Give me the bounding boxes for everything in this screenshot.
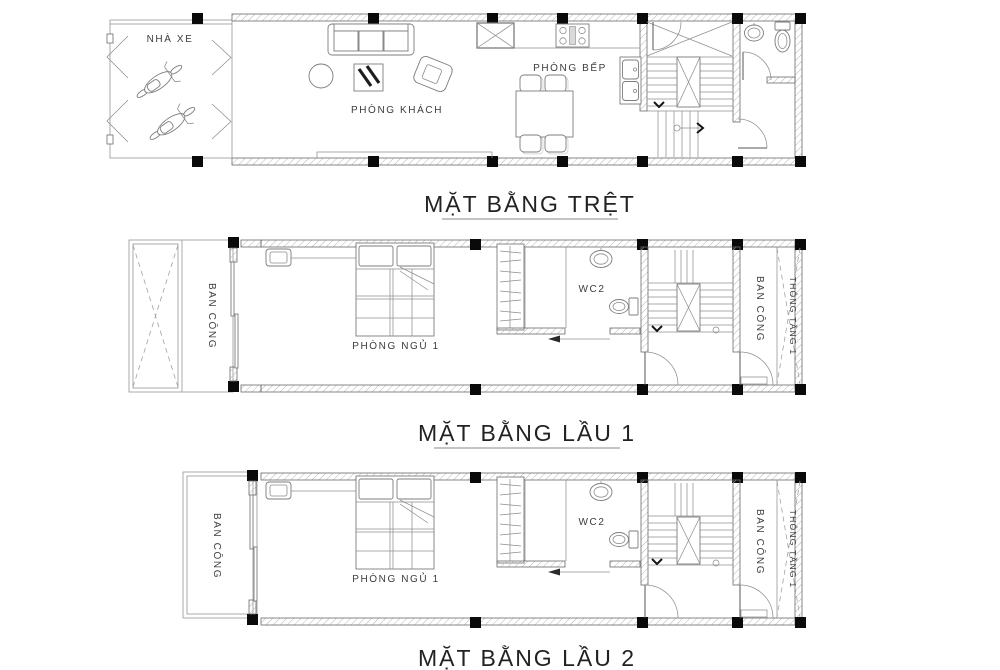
- dining-table-icon: [516, 75, 573, 154]
- floor-1-plan: BAN CÔNG PHÒNG NGỦ 1 WC2 BAN CÔNG THÔNG …: [129, 237, 806, 395]
- living-label: PHÒNG KHÁCH: [351, 103, 443, 116]
- wall-right: [795, 21, 802, 158]
- wc-label: WC2: [578, 284, 605, 295]
- side-table-icon: [309, 64, 333, 88]
- sink-icon: [745, 23, 764, 41]
- wall-bottom: [241, 385, 261, 392]
- door-swing: [738, 119, 767, 148]
- sliding-door: [247, 470, 258, 625]
- balcony-front-label: BAN CÔNG: [206, 283, 219, 349]
- wc-label: WC2: [578, 517, 605, 528]
- wall-wc: [733, 21, 740, 122]
- armchair-icon: [412, 55, 454, 94]
- void-label: THÔNG TẦNG 1: [788, 277, 798, 356]
- coffee-table-icon: [354, 64, 383, 91]
- plan-title-ground: MẶT BẰNG TRỆT: [424, 190, 636, 219]
- garage-door-icon: [212, 104, 231, 139]
- kitchen: PHÒNG BẾP: [477, 23, 641, 154]
- sofa-icon: [328, 24, 414, 55]
- garage-door-icon: [212, 40, 231, 75]
- door-swing: [743, 52, 771, 80]
- wall-top: [241, 240, 261, 247]
- bedroom-label: PHÒNG NGỦ 1: [352, 339, 440, 352]
- plan-title: MẶT BẰNG LẦU 2: [418, 644, 636, 670]
- bedroom-label: PHÒNG NGỦ 1: [352, 572, 440, 585]
- garage: NHÀ XE: [107, 20, 232, 158]
- fridge-icon: [477, 23, 514, 48]
- plan-title: MẶT BẰNG LẦU 1: [418, 419, 636, 446]
- balcony-rear-label: BAN CÔNG: [754, 509, 767, 575]
- entry-step: [317, 152, 492, 158]
- balcony-front-label: BAN CÔNG: [211, 513, 224, 579]
- kitchen-label: PHÒNG BẾP: [533, 61, 607, 74]
- living-room: PHÒNG KHÁCH: [309, 24, 492, 158]
- stove-icon: [556, 24, 589, 47]
- ground-floor-plan: NHÀ XE: [107, 13, 806, 167]
- sliding-door: [228, 237, 239, 392]
- plan-title: MẶT BẰNG TRỆT: [424, 190, 636, 217]
- void-label: THÔNG TẦNG 1: [788, 510, 798, 589]
- wc-room: [743, 22, 790, 80]
- double-sink-icon: [620, 57, 641, 104]
- wall-top: [232, 14, 802, 21]
- wall-bottom: [232, 158, 802, 165]
- plan-title-floor2: MẶT BẰNG LẦU 2: [418, 644, 636, 670]
- floor-2-plan: BAN CÔNG PHÒNG NGỦ 1 WC2 BAN CÔNG THÔNG …: [183, 470, 806, 628]
- toilet-icon: [775, 22, 790, 52]
- plan-title-floor1: MẶT BẰNG LẦU 1: [418, 419, 636, 448]
- garage-label: NHÀ XE: [147, 32, 194, 45]
- floorplan-drawing: NHÀ XE: [0, 0, 1000, 670]
- balcony-rear-label: BAN CÔNG: [754, 276, 767, 342]
- floorplan-sheet: NHÀ XE: [0, 0, 1000, 670]
- stairs-icon: [647, 22, 733, 157]
